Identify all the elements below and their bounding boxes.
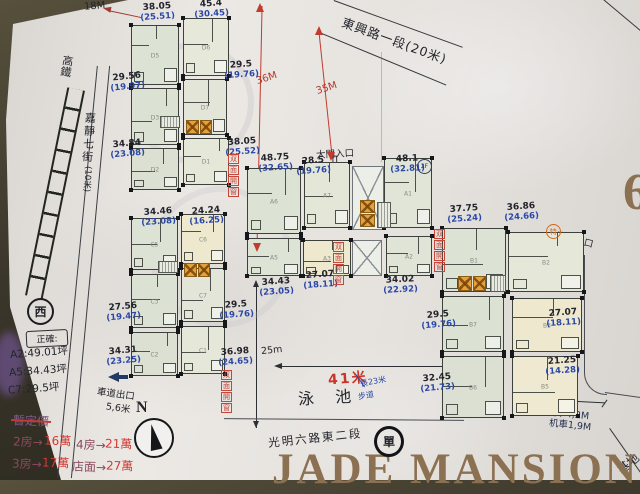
inner-wall [476,229,477,250]
column-marker [179,212,183,216]
pool-label: 泳 池 [297,382,359,409]
window-note-char: 開 [221,392,232,402]
unit-area-note-C2: 34.31(23.25) [105,346,141,368]
area-note-line: A2:49.01坪 [10,343,69,362]
inner-wall [418,237,419,254]
column-marker [510,296,514,300]
brand-wordmark: JADE MANSION [272,445,639,494]
rail-label: 高鐵 [56,54,76,78]
compass-rose [134,418,174,458]
stair-core-B [490,275,506,292]
inner-room [251,267,261,274]
price-value: 27萬 [106,457,134,475]
unit-area-note-D2: 34.84(23.08) [109,139,145,161]
area-note-line: A5:34.43坪 [9,361,68,380]
column-marker [430,156,434,160]
inner-wall [212,19,213,42]
column-marker [349,238,353,242]
top-street-label: 東興路一段(20米) [340,12,450,68]
column-marker [506,230,510,234]
column-marker [510,354,514,358]
elevator-cell [198,263,211,277]
window-note-char: 面 [221,381,232,391]
window-note-char: 窗 [228,187,239,197]
inner-room [307,214,316,225]
stair-core-D [160,116,180,128]
unit-area-note-C6: 24.24(16.25) [188,206,224,227]
price-label: 2房→ [13,432,43,450]
column-marker [181,183,185,187]
drive-exit-arrow-stem [118,375,128,379]
window-note-d1: 双面開窗 [228,154,239,197]
inner-wall [208,80,209,106]
unit-id-label: A6 [270,199,278,206]
column-marker [348,160,352,164]
column-marker [382,156,386,160]
inner-room [561,275,581,289]
inner-room [213,119,225,132]
column-marker [177,86,181,90]
inner-wall [285,169,286,195]
stair-core-C [158,261,178,273]
unit-area-note-A7: 28.5(19.76) [295,156,331,177]
inner-room [211,250,223,262]
unit-id-label: A5 [270,254,278,261]
window-note-char: 双 [221,370,232,380]
unit-area-note-A5: 34.43(23.05) [258,277,294,298]
column-marker [223,324,227,328]
unit-area-note-C3: 27.56(19.47) [105,302,141,324]
special-unit-char: 特 [550,227,557,237]
net-area: (24.65) [218,357,253,369]
inner-wall [157,275,158,287]
one-way-char: 單 [383,433,395,450]
unit-id-label: B6 [469,385,477,392]
column-marker [129,216,133,220]
column-marker [181,77,185,81]
light-well-hatch [352,240,382,276]
inner-wall [385,182,409,183]
column-marker [181,136,185,140]
window-note-char: 面 [434,240,445,250]
inner-room [284,264,298,273]
unit-area-note-A2: 34.02(22.92) [383,275,419,296]
inner-room [558,399,575,413]
net-area: (25.51) [140,12,175,24]
column-marker [245,166,249,170]
inner-wall [166,89,167,106]
elevator-cell [360,214,375,227]
one-way-badge: 單 [374,426,404,457]
unit-id-label: D6 [202,45,210,52]
left-street-label: 嘉靜七街 [78,112,98,165]
unit-id-label: A1 [404,191,412,198]
column-marker [177,188,181,192]
south-boundary-line [224,418,464,421]
window-note-char: 双 [434,229,445,239]
window-note-char: 開 [434,251,445,261]
inner-wall [132,121,152,122]
unit-A2: A2 [386,236,432,276]
column-marker [223,266,227,270]
stair-core-A [377,202,391,228]
inner-wall [132,45,149,46]
elevator-core-D [186,120,212,134]
unit-id-label: C3 [150,299,158,306]
net-area: (22.92) [383,285,418,296]
elevator-core-B [458,276,486,291]
window-note-char: 窗 [221,403,232,413]
net-area: (19.76) [224,70,259,82]
net-area: (24.66) [504,212,539,224]
column-marker [348,226,352,230]
column-marker [245,274,249,278]
inner-wall [210,269,211,291]
net-area: (23.05) [259,287,294,299]
unit-id-label: B7 [469,322,477,329]
column-marker [502,354,506,358]
inner-room [134,365,143,373]
column-marker [302,226,306,230]
column-marker [582,230,586,234]
inner-wall [219,139,220,151]
price-label: 3房→ [12,454,42,472]
east-boundary-line [584,255,585,373]
unit-area-note-C1: 36.98(24.65) [217,347,253,368]
column-marker [440,416,444,420]
unit-area-note-B7: 29.5(19.76) [420,310,456,332]
window-note-char: 窗 [333,275,344,285]
dim-18m-arrowhead [102,5,111,13]
inner-room [184,363,193,371]
column-marker [502,416,506,420]
column-marker [179,324,183,328]
elevator-cell [184,263,197,277]
east-boundary-curve [584,370,607,395]
column-marker [582,290,586,294]
column-marker [177,146,181,150]
inner-room [163,313,176,325]
price-value: 16萬 [44,432,72,450]
unit-id-label: B5 [541,384,549,391]
west-direction-badge: 西 [27,298,54,325]
window-note-char: 開 [228,176,239,186]
unit-area-note-D3: 29.56(19.97) [109,71,145,93]
unit-id-label: C6 [199,236,207,243]
unit-id-label: D2 [151,166,159,173]
unit-area-note-B1: 37.75(25.24) [446,204,482,225]
unit-id-label: B2 [542,260,550,267]
unit-area-note-D7: 29.5(19.76) [223,60,259,81]
column-marker [510,414,514,418]
inner-room [516,403,528,413]
column-marker [176,216,180,220]
net-area: (25.24) [447,214,482,226]
inner-room [446,278,458,289]
brand-big-digit: 6 [623,163,640,222]
special-unit-badge: 特 [546,224,561,239]
unit-B2: B2 [508,232,584,292]
inner-wall [184,102,210,103]
inner-room [163,363,176,373]
a1-floor-badge: 2F [417,159,432,174]
window-note-char: 窗 [434,262,445,272]
window-note-char: 双 [333,242,344,252]
inner-room [214,171,227,182]
column-marker [129,188,133,192]
inner-room [417,209,430,225]
dim-35m-label: 35M [315,80,339,97]
east-boundary-tail [605,392,640,398]
window-note-char: 開 [333,264,344,274]
dim-41m-arrowhead [274,363,282,369]
column-marker [384,234,388,238]
compass-north-label: N [136,399,148,417]
inner-wall [182,300,203,301]
unit-id-label: D3 [151,114,159,121]
unit-area-note-B2: 36.86(24.66) [503,202,539,223]
column-marker [506,290,510,294]
column-marker [349,274,353,278]
area-note-line: C7:29.5坪 [8,379,60,398]
drive-exit-width-label: 5,6米 [105,398,131,415]
ne-boundary-line [599,0,640,31]
inner-wall [248,193,272,194]
window-note-b1: 双面開窗 [434,229,445,272]
column-marker [301,238,305,242]
inner-room [417,264,430,274]
column-marker [580,296,584,300]
column-marker [440,354,444,358]
column-marker [129,374,133,378]
unit-D6: D6 [183,18,229,76]
dim-18m-arrow-line [108,10,141,18]
west-char: 西 [34,303,46,320]
inner-room [251,220,261,231]
price-label: 4房→ [76,435,106,453]
window-note-c1: 双面開窗 [221,370,232,413]
pool-walkway-label: 步道 [357,389,375,403]
inner-wall [489,297,490,320]
unit-id-label: A7 [323,193,331,200]
window-note-a3: 双面開窗 [333,242,344,285]
unit-area-note-D5: 38.05(25.51) [139,2,175,23]
unit-area-note-D6: 45.4(30.45) [193,0,229,20]
column-marker [245,236,249,240]
inner-room [485,336,501,349]
inner-wall [485,357,486,387]
window-note-char: 面 [333,253,344,263]
column-marker [179,372,183,376]
inner-wall [167,333,168,346]
elevator-cell [186,120,199,134]
price-value: 17萬 [42,454,70,472]
unit-area-note-B3: 27.07(18.11) [545,308,581,329]
inner-room [164,177,177,187]
unit-area-note-B5: 21.25(14.28) [544,356,580,377]
column-marker [580,350,584,354]
elevator-cell [473,276,487,291]
inner-room [516,340,529,349]
drive-exit-arrowhead [108,372,119,382]
inner-room [389,266,398,273]
unit-id-label: A2 [405,253,413,260]
unit-D1: D1 [183,138,229,185]
unit-area-note-A6: 48.75(32.65) [257,153,293,174]
column-marker [440,294,444,298]
column-marker [129,23,133,27]
unit-area-note-C7: 29.5(19.76) [218,300,254,321]
left-street-width-label: (10米) [80,166,94,193]
inner-room [184,252,193,261]
price-label: 店面→ [72,457,107,475]
inner-wall [156,26,157,39]
inner-room [513,279,527,289]
unit-area-note-B6: 32.45(21.73) [419,373,455,395]
unit-A6: A6 [247,168,301,234]
inner-room [186,63,195,73]
inner-wall [163,149,164,164]
column-marker [179,266,183,270]
dim-25m-arrow-bottom [253,421,259,428]
inner-wall [288,239,289,252]
inner-room [186,174,195,182]
site-plan-photo: 18M 東興路一段(20米) 36M 35M 高鐵 嘉靜七街 (10米) 西 正… [0,0,640,480]
column-marker [176,330,180,334]
inner-wall [208,327,209,350]
railway-track [25,87,85,298]
price-value: 21萬 [105,435,133,453]
unit-id-label: B1 [470,258,478,265]
unit-area-note-C5: 34.46(23.08) [140,207,176,228]
unit-id-label: D7 [201,105,209,112]
inner-room [335,210,348,225]
inner-room [446,339,458,349]
elevator-cell [458,276,472,291]
elevator-cell [200,120,213,134]
elevator-cell [360,200,375,213]
carwidth-dim-tick [602,400,608,408]
unit-id-label: C1 [199,347,207,354]
window-note-char: 双 [228,154,239,164]
elevator-core-A [360,200,375,227]
unit-id-label: C2 [150,351,158,358]
elevator-core-C [184,263,210,277]
compass-needle [145,423,162,451]
inner-room [134,180,143,188]
inner-wall [248,256,269,257]
column-marker [502,294,506,298]
column-marker [129,272,133,276]
inner-room [134,258,143,267]
a1-floor-badge-text: 2F [421,163,428,170]
unit-id-label: D5 [151,53,159,60]
unit-id-label: C7 [199,293,207,300]
dim-36m-arrow-bottom [253,243,261,252]
unit-id-label: C5 [150,242,158,249]
unit-id-label: D1 [202,159,210,166]
dim-36m-arrow-top [256,3,264,12]
dim-25m-label: 25m [260,344,282,357]
inner-room [485,401,501,415]
column-marker [177,23,181,27]
survey-pencil-line [381,52,382,162]
column-marker [129,330,133,334]
inner-room [184,310,193,319]
inner-room [164,129,177,142]
column-marker [576,414,580,418]
inner-room [561,337,579,349]
inner-wall [184,156,201,157]
unit-id-label: A3 [323,255,331,262]
column-marker [181,16,185,20]
inner-wall [513,392,555,393]
inner-room [164,68,177,82]
inner-wall [509,256,548,257]
column-marker [430,274,434,278]
window-note-char: 面 [228,165,239,175]
inner-wall [182,231,201,232]
moto-width-label: 机車1,9M [548,415,592,433]
inner-room [446,404,458,414]
inner-room [284,216,298,231]
dim-35m-arrow-top [315,26,323,35]
